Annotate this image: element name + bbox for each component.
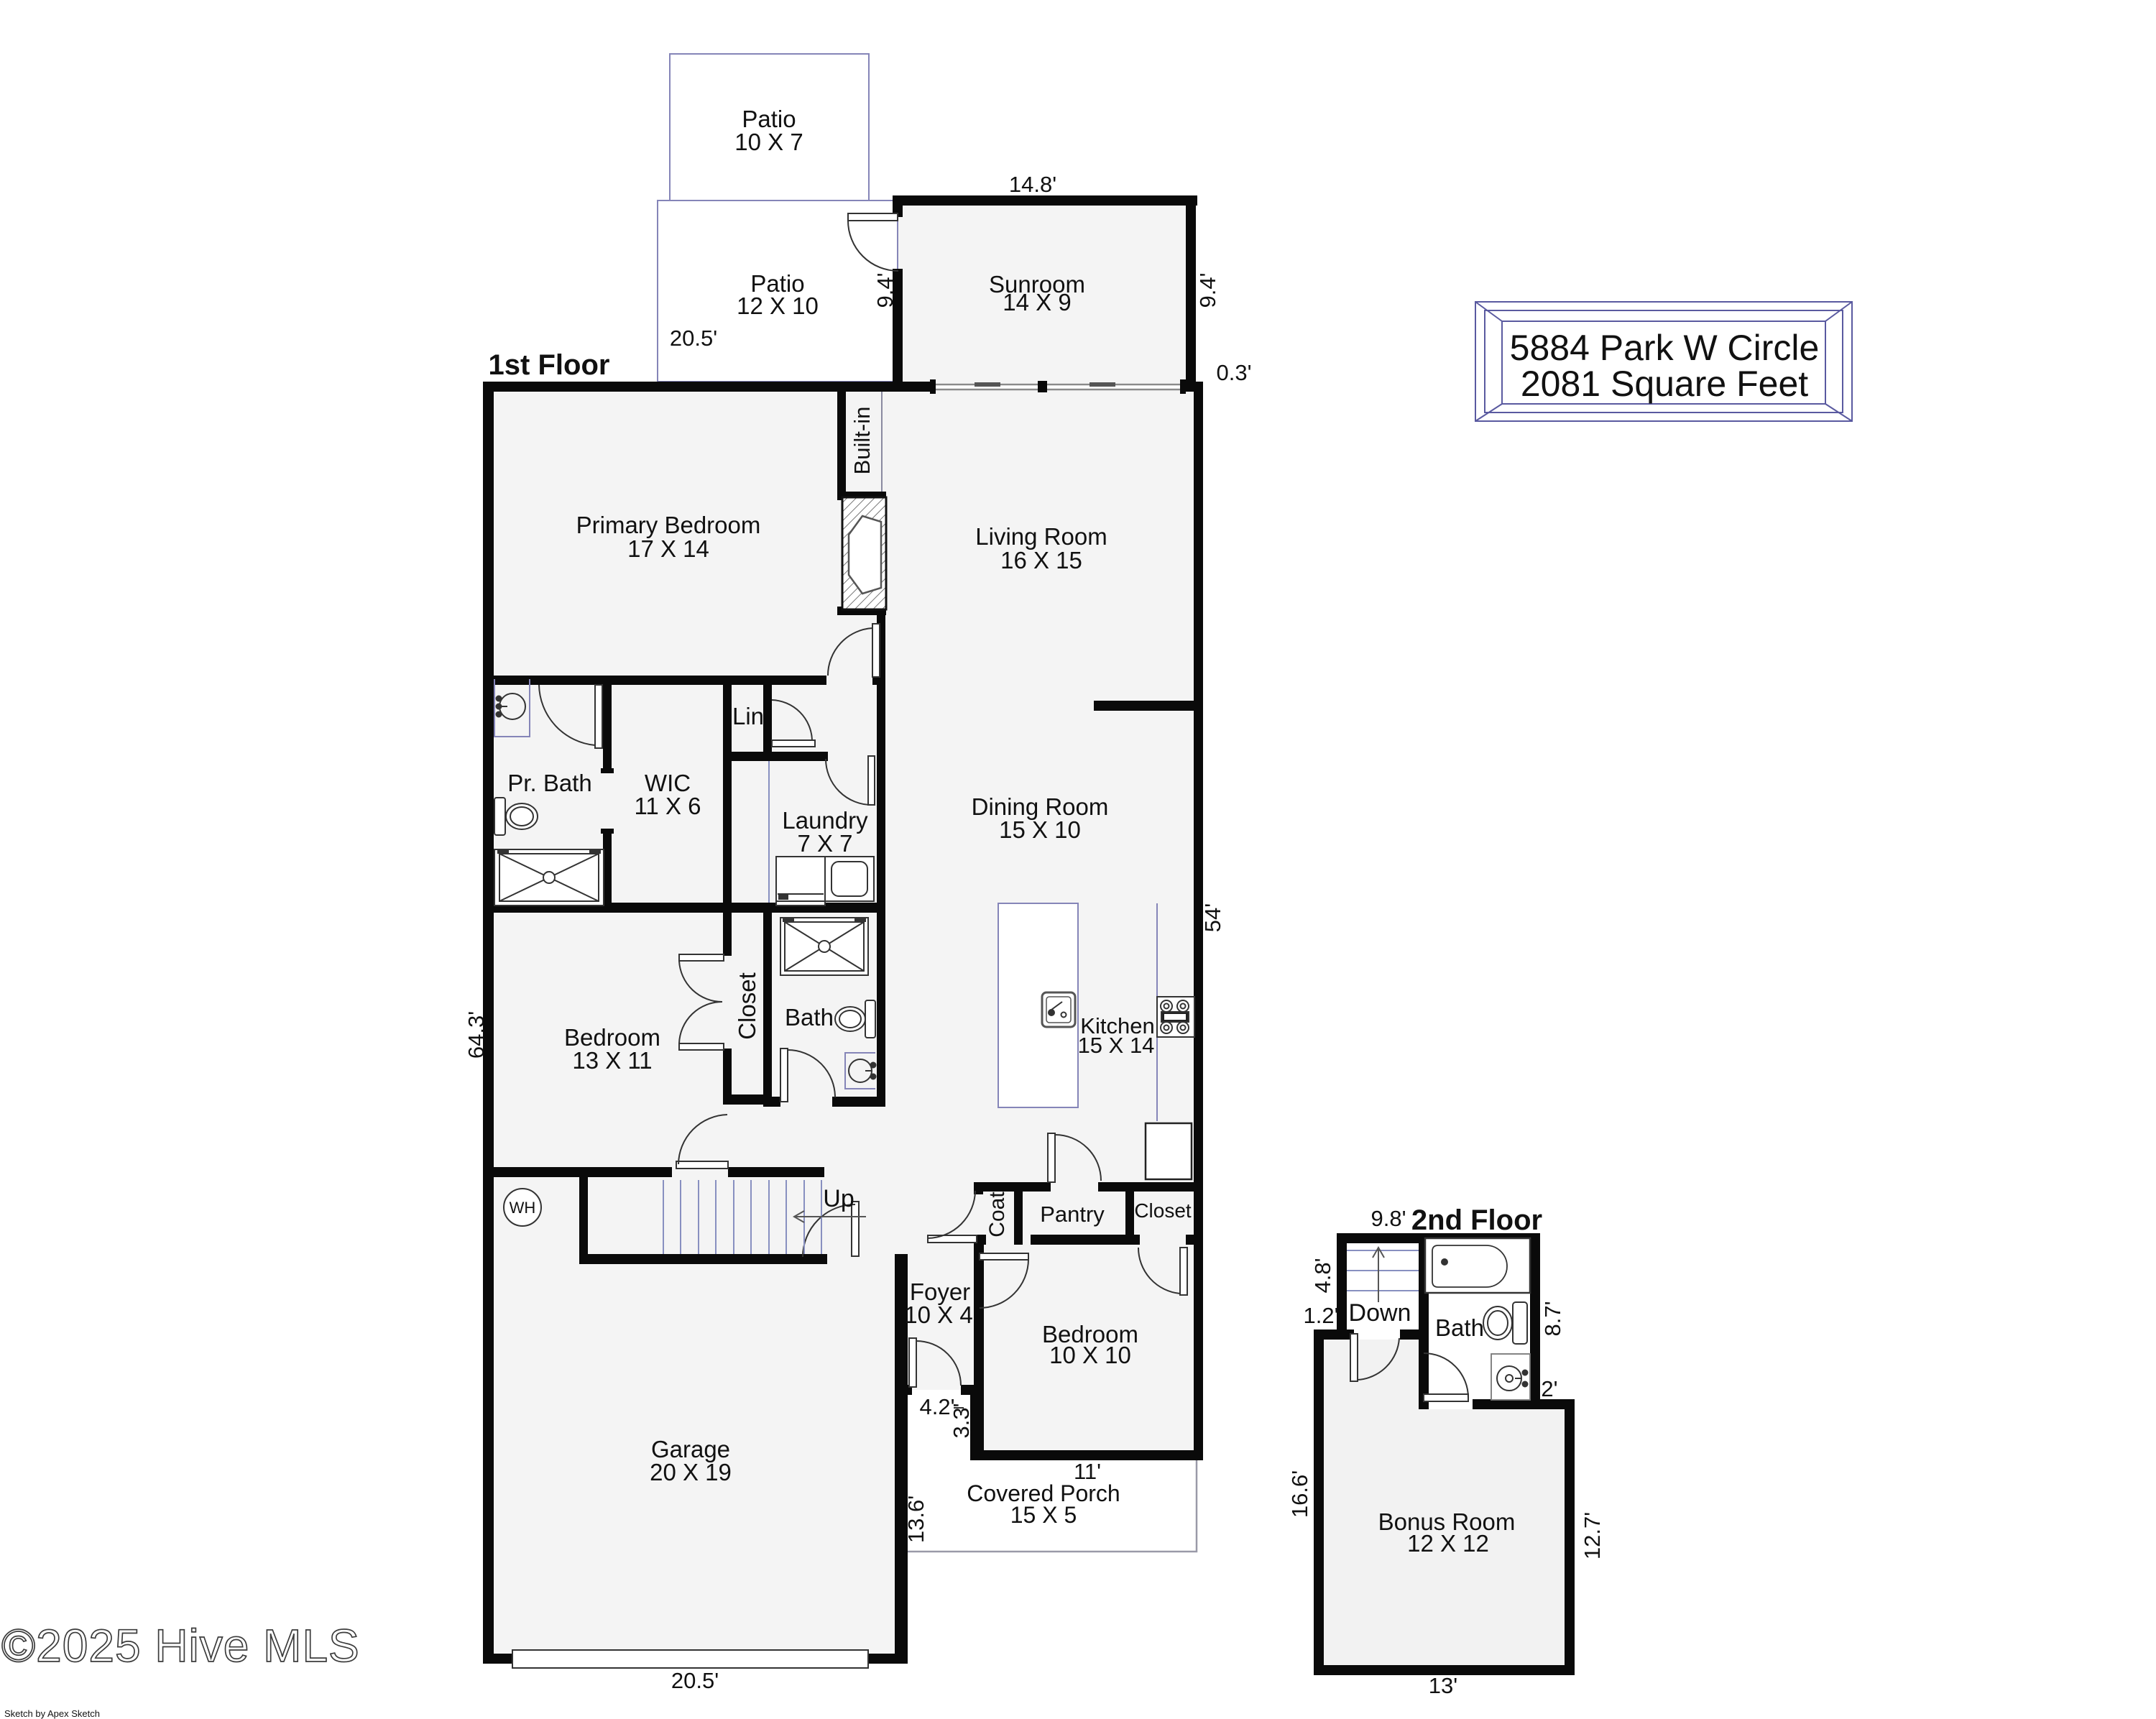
svg-text:10 X 10: 10 X 10 [1049, 1342, 1131, 1368]
svg-text:4.8': 4.8' [1310, 1258, 1335, 1293]
svg-text:10 X 7: 10 X 7 [734, 129, 803, 155]
svg-text:Closet: Closet [734, 972, 760, 1040]
svg-text:©2025 Hive MLS: ©2025 Hive MLS [1, 1620, 360, 1672]
svg-text:11 X 6: 11 X 6 [635, 793, 701, 819]
svg-text:Primary Bedroom: Primary Bedroom [576, 512, 761, 538]
svg-text:1st Floor: 1st Floor [489, 349, 610, 381]
svg-text:Built-in: Built-in [849, 407, 875, 475]
svg-text:9.4': 9.4' [872, 272, 898, 308]
svg-text:12.7': 12.7' [1580, 1512, 1605, 1559]
svg-text:13': 13' [1429, 1673, 1457, 1698]
svg-text:12 X 10: 12 X 10 [737, 292, 819, 319]
svg-text:8.7': 8.7' [1540, 1301, 1565, 1336]
svg-text:Coat: Coat [985, 1192, 1009, 1238]
svg-text:Pr. Bath: Pr. Bath [507, 770, 591, 796]
svg-text:64.3': 64.3' [464, 1011, 489, 1059]
svg-text:7 X 7: 7 X 7 [797, 830, 852, 857]
svg-text:3.3': 3.3' [949, 1403, 974, 1438]
svg-text:9.4': 9.4' [1195, 272, 1220, 308]
svg-text:17 X 14: 17 X 14 [627, 535, 709, 562]
svg-text:11': 11' [1074, 1459, 1101, 1484]
svg-text:Bath: Bath [785, 1004, 834, 1031]
svg-text:16.6': 16.6' [1287, 1470, 1312, 1518]
svg-text:20 X 19: 20 X 19 [650, 1459, 732, 1485]
svg-text:13 X 11: 13 X 11 [572, 1047, 652, 1074]
svg-text:2081 Square Feet: 2081 Square Feet [1521, 364, 1808, 404]
svg-text:15 X 14: 15 X 14 [1078, 1033, 1155, 1058]
svg-text:20.5': 20.5' [671, 1668, 719, 1693]
svg-text:14.8': 14.8' [1009, 172, 1056, 197]
svg-text:5884 Park W Circle: 5884 Park W Circle [1510, 328, 1820, 368]
svg-text:Living Room: Living Room [975, 523, 1107, 550]
svg-text:13.6': 13.6' [903, 1496, 929, 1543]
svg-text:15 X 10: 15 X 10 [999, 816, 1081, 843]
svg-text:16 X 15: 16 X 15 [1000, 547, 1082, 573]
svg-text:9.8': 9.8' [1370, 1206, 1406, 1231]
svg-text:Down: Down [1349, 1299, 1411, 1327]
svg-text:Closet: Closet [1134, 1199, 1192, 1222]
svg-text:0.3': 0.3' [1216, 360, 1251, 385]
svg-text:Up: Up [823, 1185, 854, 1212]
svg-text:Lin: Lin [732, 703, 764, 729]
svg-text:1.2': 1.2' [1303, 1303, 1338, 1328]
svg-text:Pantry: Pantry [1040, 1202, 1105, 1227]
svg-text:Bath: Bath [1435, 1314, 1484, 1341]
svg-text:2': 2' [1541, 1376, 1557, 1401]
svg-text:WH: WH [510, 1199, 536, 1217]
svg-text:20.5': 20.5' [670, 326, 717, 351]
svg-text:54': 54' [1200, 903, 1225, 932]
svg-text:2nd Floor: 2nd Floor [1411, 1204, 1542, 1236]
svg-text:12 X 12: 12 X 12 [1407, 1530, 1489, 1557]
svg-text:14 X 9: 14 X 9 [1003, 289, 1071, 315]
svg-text:15 X 5: 15 X 5 [1010, 1502, 1077, 1528]
svg-text:Sketch by Apex Sketch: Sketch by Apex Sketch [4, 1708, 100, 1719]
svg-text:10 X 4: 10 X 4 [904, 1301, 972, 1328]
